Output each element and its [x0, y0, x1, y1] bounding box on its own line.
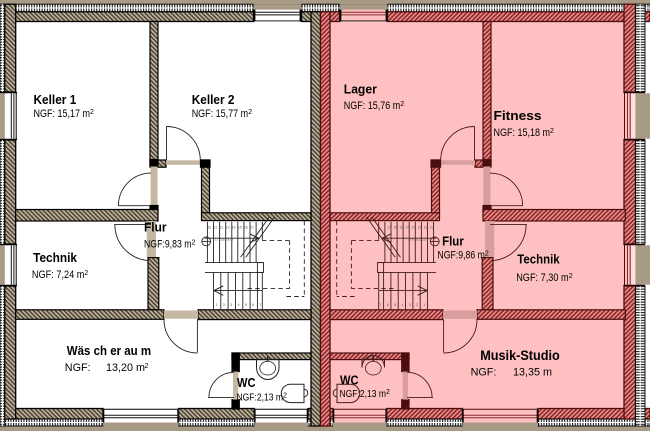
svg-text:NGF: 7,30 m2: NGF: 7,30 m2 [516, 272, 573, 284]
svg-text:1: 1 [216, 303, 218, 307]
svg-text:Keller 2: Keller 2 [192, 92, 235, 107]
svg-text:NGF: 7,24 m2: NGF: 7,24 m2 [32, 269, 89, 281]
svg-text:Wäs ch er au m: Wäs ch er au m [67, 343, 151, 358]
svg-text:NGF: 15,77 m2: NGF: 15,77 m2 [192, 108, 253, 120]
svg-text:2: 2 [145, 363, 149, 370]
svg-text:NGF: 15,76 m2: NGF: 15,76 m2 [344, 100, 405, 112]
svg-text:12: 12 [220, 226, 224, 230]
svg-text:14: 14 [405, 226, 409, 230]
svg-text:15: 15 [238, 226, 242, 230]
svg-text:NGF:9,83 m2: NGF:9,83 m2 [144, 239, 196, 251]
svg-text:2: 2 [416, 303, 418, 307]
svg-text:NGF:2,13 m2: NGF:2,13 m2 [340, 389, 391, 400]
svg-text:17: 17 [387, 226, 391, 230]
svg-text:3: 3 [230, 303, 232, 307]
svg-text:NGF:: NGF: [471, 367, 497, 379]
svg-text:4: 4 [401, 303, 403, 307]
svg-text:NGF:9,86 m2: NGF:9,86 m2 [437, 250, 489, 262]
svg-text:NGF: 15,18 m2: NGF: 15,18 m2 [494, 127, 555, 139]
svg-text:WC: WC [237, 376, 256, 390]
svg-text:3: 3 [409, 303, 411, 307]
svg-text:7: 7 [380, 303, 382, 307]
svg-text:Fitness: Fitness [494, 108, 542, 123]
svg-text:16: 16 [244, 226, 248, 230]
svg-text:Keller 1: Keller 1 [34, 92, 77, 107]
svg-text:Flur: Flur [442, 234, 464, 249]
svg-text:4: 4 [238, 303, 240, 307]
svg-text:11: 11 [214, 226, 218, 230]
svg-text:Technik: Technik [33, 250, 77, 265]
svg-text:17x18,2x25: 17x18,2x25 [215, 237, 234, 241]
svg-text:Technik: Technik [517, 252, 560, 267]
svg-text:2: 2 [223, 303, 225, 307]
svg-text:11: 11 [424, 226, 428, 230]
svg-text:Lager: Lager [344, 82, 377, 97]
svg-text:Musik-Studio: Musik-Studio [480, 348, 560, 363]
svg-text:5: 5 [245, 303, 247, 307]
svg-text:13: 13 [412, 226, 416, 230]
svg-text:7: 7 [260, 303, 262, 307]
svg-text:6: 6 [387, 303, 389, 307]
svg-text:16: 16 [393, 226, 397, 230]
svg-text:13,20 m: 13,20 m [106, 362, 145, 374]
svg-text:14: 14 [232, 226, 236, 230]
svg-text:NGF:: NGF: [65, 362, 91, 374]
svg-text:10: 10 [207, 226, 211, 230]
svg-text:NGF:2,13 m2: NGF:2,13 m2 [237, 392, 288, 403]
svg-text:5: 5 [394, 303, 396, 307]
svg-text:1: 1 [423, 303, 425, 307]
svg-text:13: 13 [226, 226, 230, 230]
svg-text:6: 6 [252, 303, 254, 307]
svg-text:10: 10 [430, 226, 434, 230]
svg-text:Flur: Flur [144, 220, 167, 235]
svg-text:13,35 m: 13,35 m [513, 367, 552, 379]
svg-text:WC: WC [340, 374, 359, 388]
svg-text:NGF: 15,17 m2: NGF: 15,17 m2 [34, 108, 95, 120]
svg-text:17: 17 [250, 226, 254, 230]
svg-text:12: 12 [418, 226, 422, 230]
svg-text:15: 15 [399, 226, 403, 230]
svg-text:17x18,2x25: 17x18,2x25 [408, 237, 427, 241]
